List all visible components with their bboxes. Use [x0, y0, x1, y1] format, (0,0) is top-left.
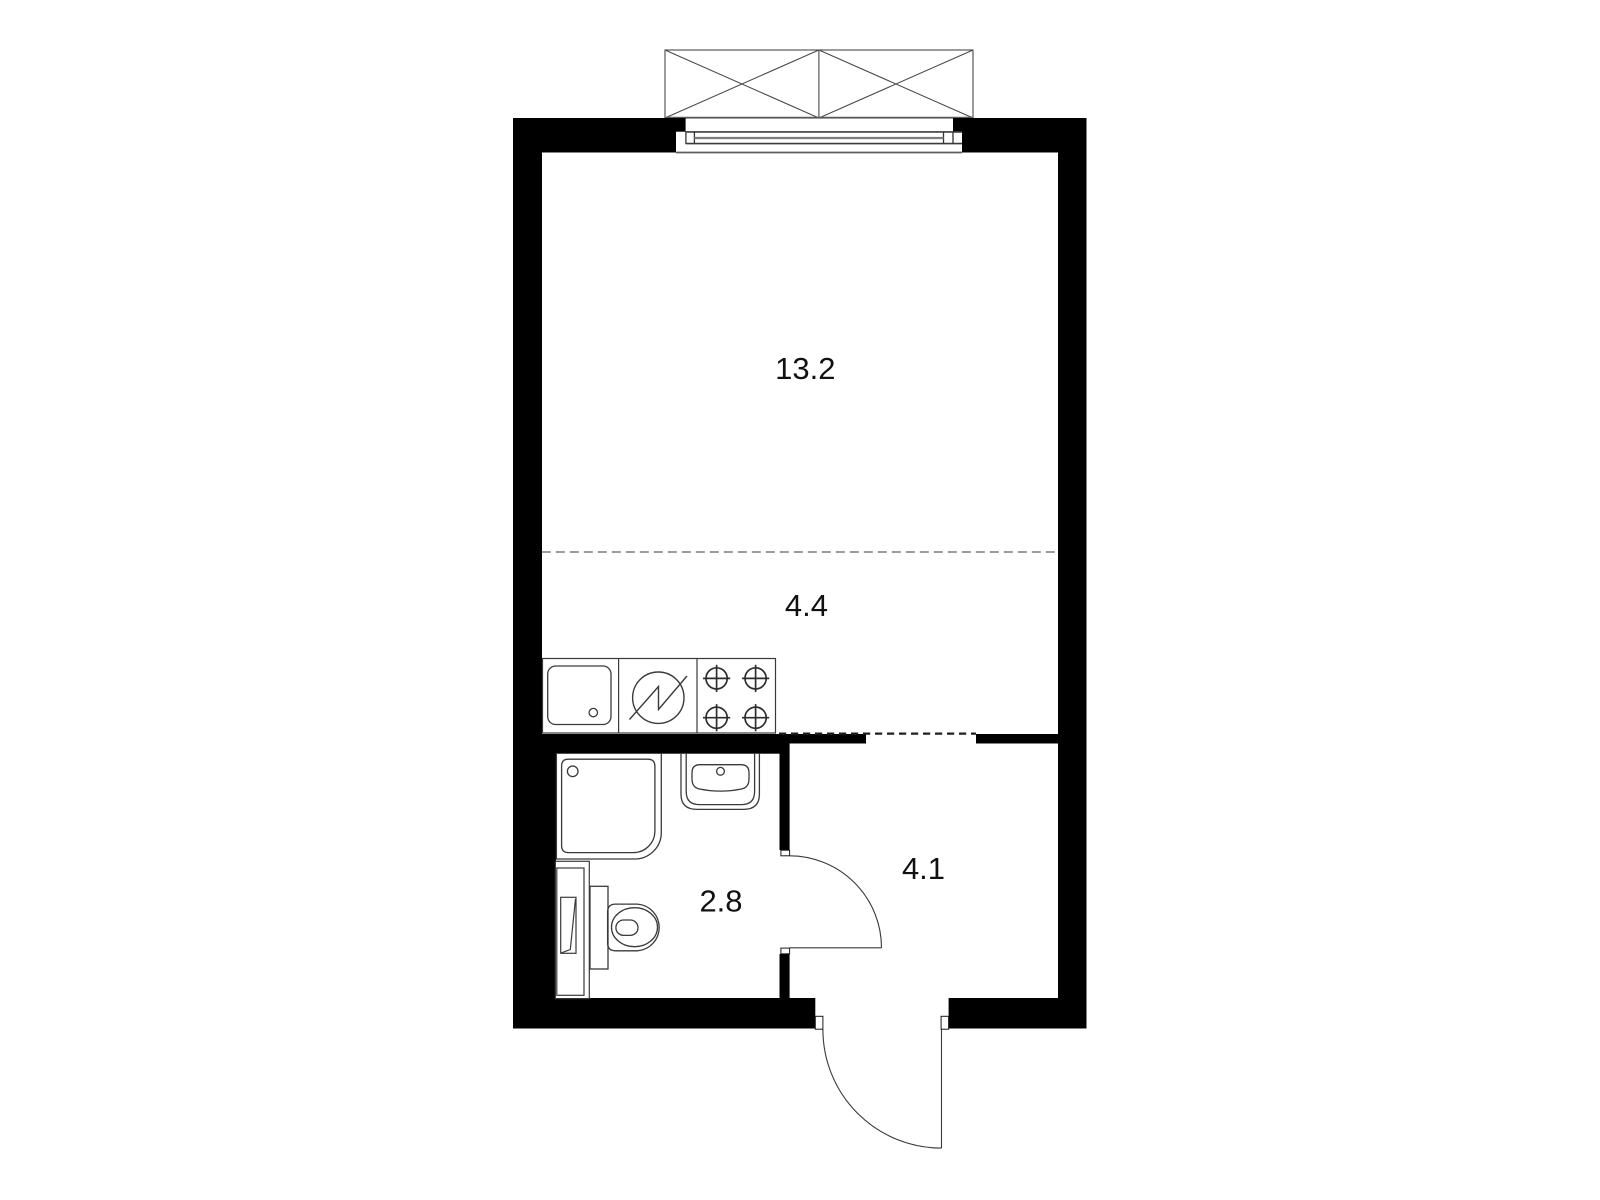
- svg-text:4.4: 4.4: [785, 588, 828, 623]
- svg-text:2.8: 2.8: [699, 883, 742, 918]
- svg-text:13.2: 13.2: [775, 351, 835, 386]
- svg-text:4.1: 4.1: [902, 851, 945, 886]
